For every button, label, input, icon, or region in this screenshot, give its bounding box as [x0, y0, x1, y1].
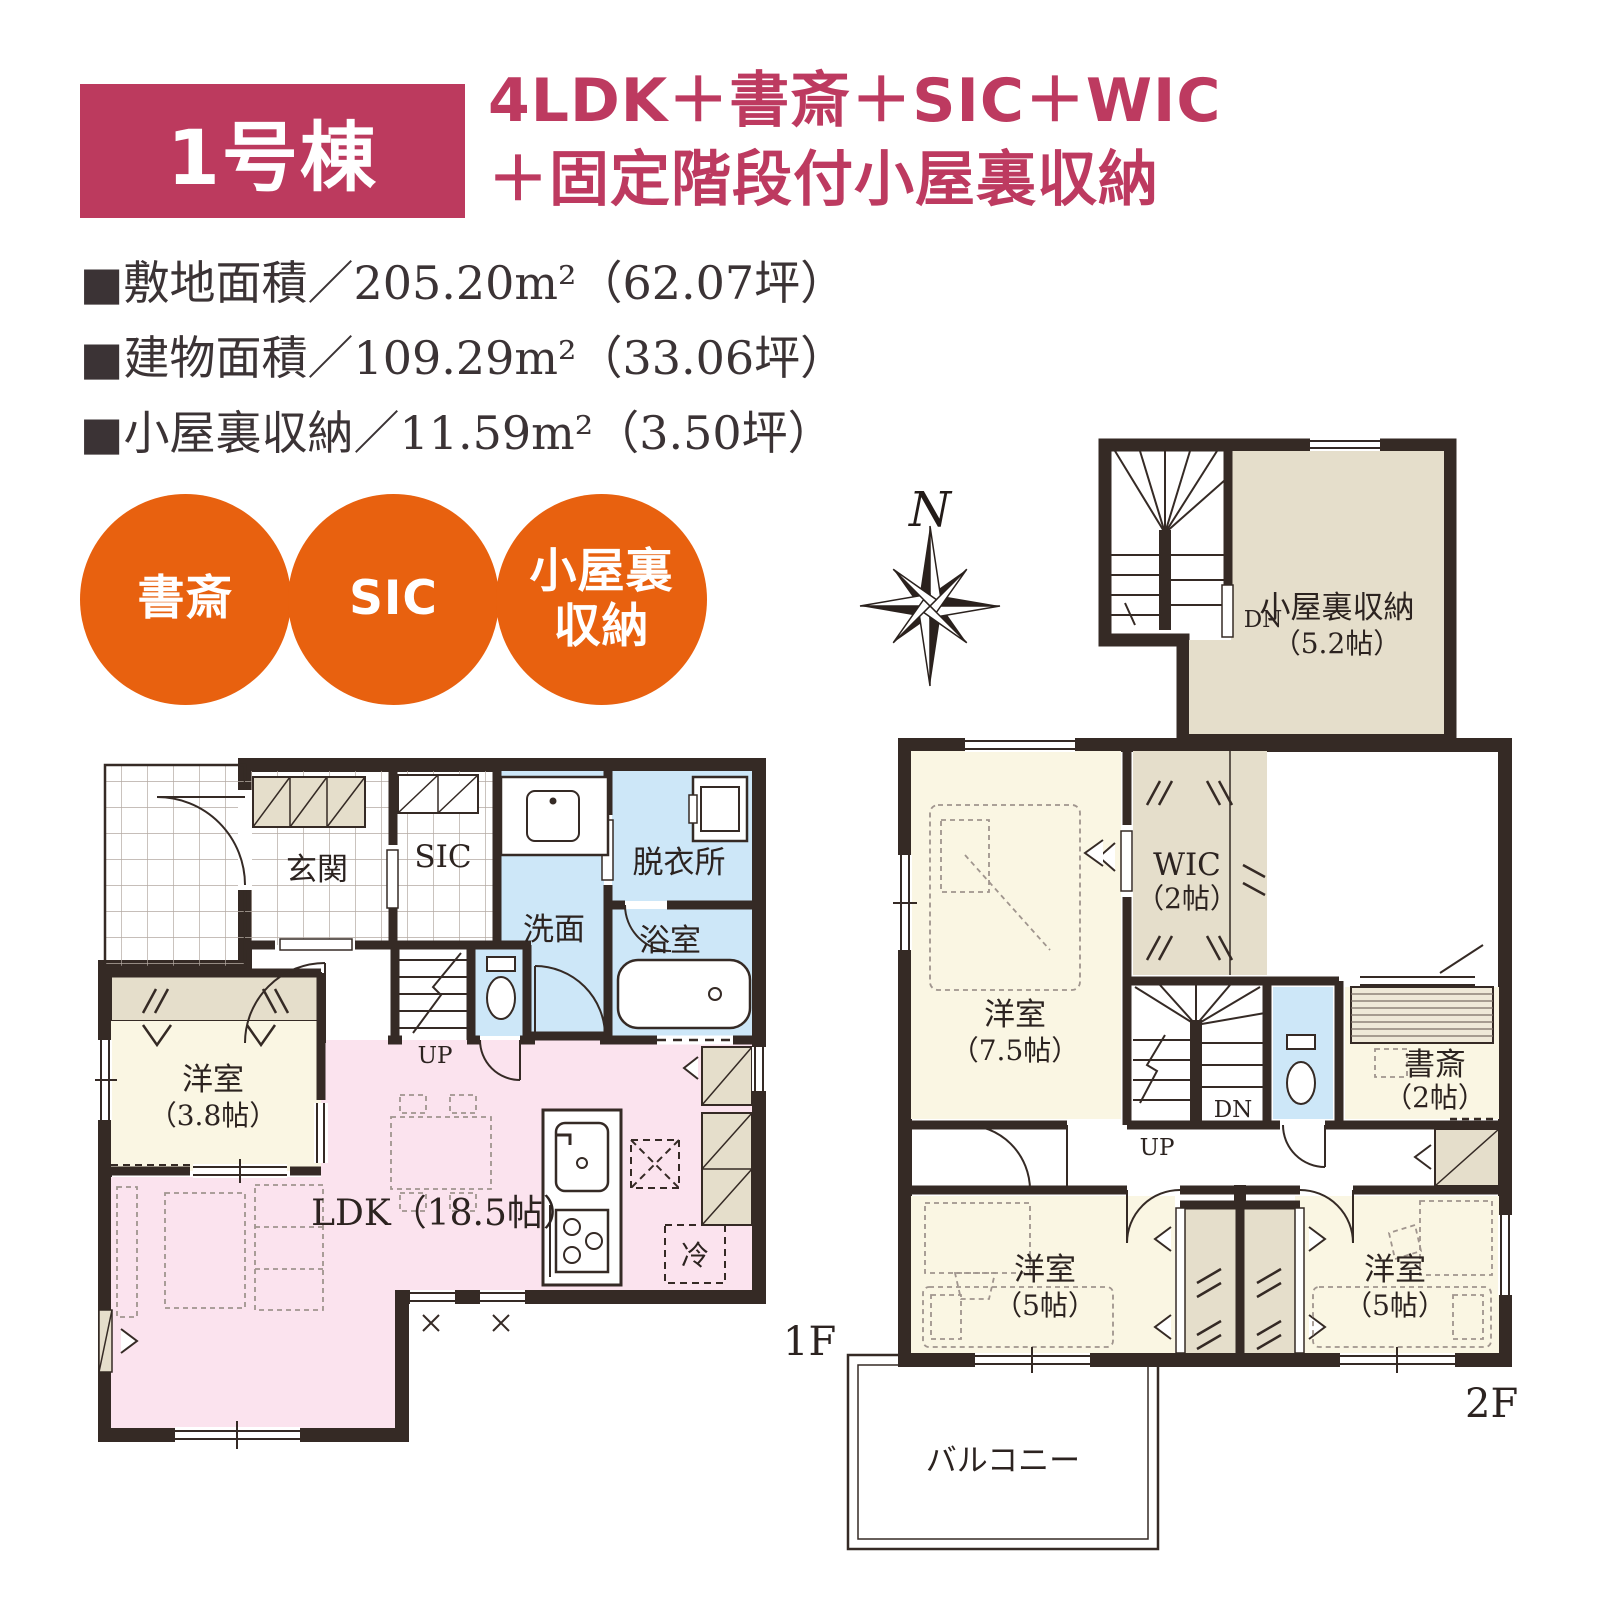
page-title: 4LDK＋書斎＋SIC＋WIC ＋固定階段付小屋裏収納 — [488, 62, 1221, 220]
genkan-hall-door — [280, 939, 352, 950]
attic-room-label: 小屋裏収納 — [1260, 590, 1415, 626]
floor2-label: 2F — [1465, 1381, 1518, 1427]
ldk-label: LDK（18.5帖） — [311, 1193, 579, 1234]
room-5-right-label: 洋室 — [1364, 1252, 1426, 1288]
closet-2f-left — [1183, 1208, 1237, 1353]
attic-stair-post — [1159, 530, 1171, 630]
fridge-label: 冷 — [681, 1239, 709, 1272]
balcony: バルコニー — [848, 1355, 1158, 1549]
genkan-sic-door — [387, 850, 398, 908]
stair-post-2f — [1190, 1020, 1202, 1125]
feature-badges: 書斎 SIC 小屋裏 収納 — [80, 494, 707, 705]
datsui-label: 脱衣所 — [633, 845, 726, 881]
attic-window — [1310, 438, 1380, 451]
spec-building-area: ■建物面積／109.29m²（33.06坪） — [80, 321, 846, 396]
compass: N — [845, 468, 1020, 708]
page-title-line2: ＋固定階段付小屋裏収納 — [488, 141, 1221, 220]
spec-list: ■敷地面積／205.20m²（62.07坪） ■建物面積／109.29m²（33… — [80, 246, 846, 471]
study-label: 書斎 — [1404, 1047, 1466, 1083]
balcony-label: バルコニー — [926, 1443, 1080, 1479]
room-7-5-label: 洋室 — [984, 997, 1046, 1033]
shoe-cabinet — [253, 777, 365, 827]
attic-plan: DN 小屋裏収納 （5.2帖） — [1095, 435, 1465, 750]
room-5-left-label: 洋室 — [1014, 1252, 1076, 1288]
room-7-5-size: （7.5帖） — [951, 1034, 1080, 1067]
sic-shelf — [398, 775, 478, 813]
unit-number-box: 1号棟 — [80, 84, 465, 218]
genkan-label: 玄関 — [286, 852, 348, 888]
spec-attic-area: ■小屋裏収納／11.59m²（3.50坪） — [80, 396, 846, 471]
washing-machine — [689, 777, 747, 841]
west-room-label: 洋室 — [182, 1062, 244, 1098]
floor2-plan: バルコニー — [835, 735, 1595, 1595]
porch — [105, 765, 245, 967]
bath-label: 浴室 — [639, 923, 701, 959]
spec-site-area: ■敷地面積／205.20m²（62.07坪） — [80, 246, 846, 321]
room-5-left-size: （5帖） — [994, 1289, 1096, 1322]
unit-number-label: 1号棟 — [167, 96, 378, 206]
badge-attic-storage: 小屋裏 収納 — [496, 494, 707, 705]
study-size: （2帖） — [1384, 1081, 1486, 1114]
wic-label: WIC — [1153, 847, 1221, 883]
page-title-line1: 4LDK＋書斎＋SIC＋WIC — [488, 62, 1221, 141]
senmen-label: 洗面 — [523, 912, 585, 948]
attic-room-size: （5.2帖） — [1273, 627, 1402, 660]
attic-door-panel — [1222, 585, 1233, 637]
compass-star-icon — [860, 526, 1000, 686]
up-label-2f: UP — [1140, 1135, 1175, 1161]
flyer-canvas: 1号棟 4LDK＋書斎＋SIC＋WIC ＋固定階段付小屋裏収納 ■敷地面積／20… — [0, 0, 1600, 1600]
dn-label-2f: DN — [1214, 1097, 1253, 1123]
sic-label: SIC — [414, 839, 471, 875]
washbasin — [501, 777, 608, 855]
closet-2f-right — [1243, 1208, 1297, 1353]
badge-study: 書斎 — [80, 494, 291, 705]
room-5-right-size: （5帖） — [1344, 1289, 1446, 1322]
closet-wall-notch — [1234, 1185, 1246, 1209]
floor1-plan: 冷 — [95, 755, 865, 1455]
west-room-size-label: （3.8帖） — [149, 1099, 278, 1132]
closet-1f — [111, 973, 321, 1021]
badge-sic: SIC — [288, 494, 499, 705]
floor1-label: 1F — [783, 1319, 836, 1365]
up-label-1f: UP — [418, 1043, 453, 1069]
wic-size: （2帖） — [1136, 882, 1238, 915]
